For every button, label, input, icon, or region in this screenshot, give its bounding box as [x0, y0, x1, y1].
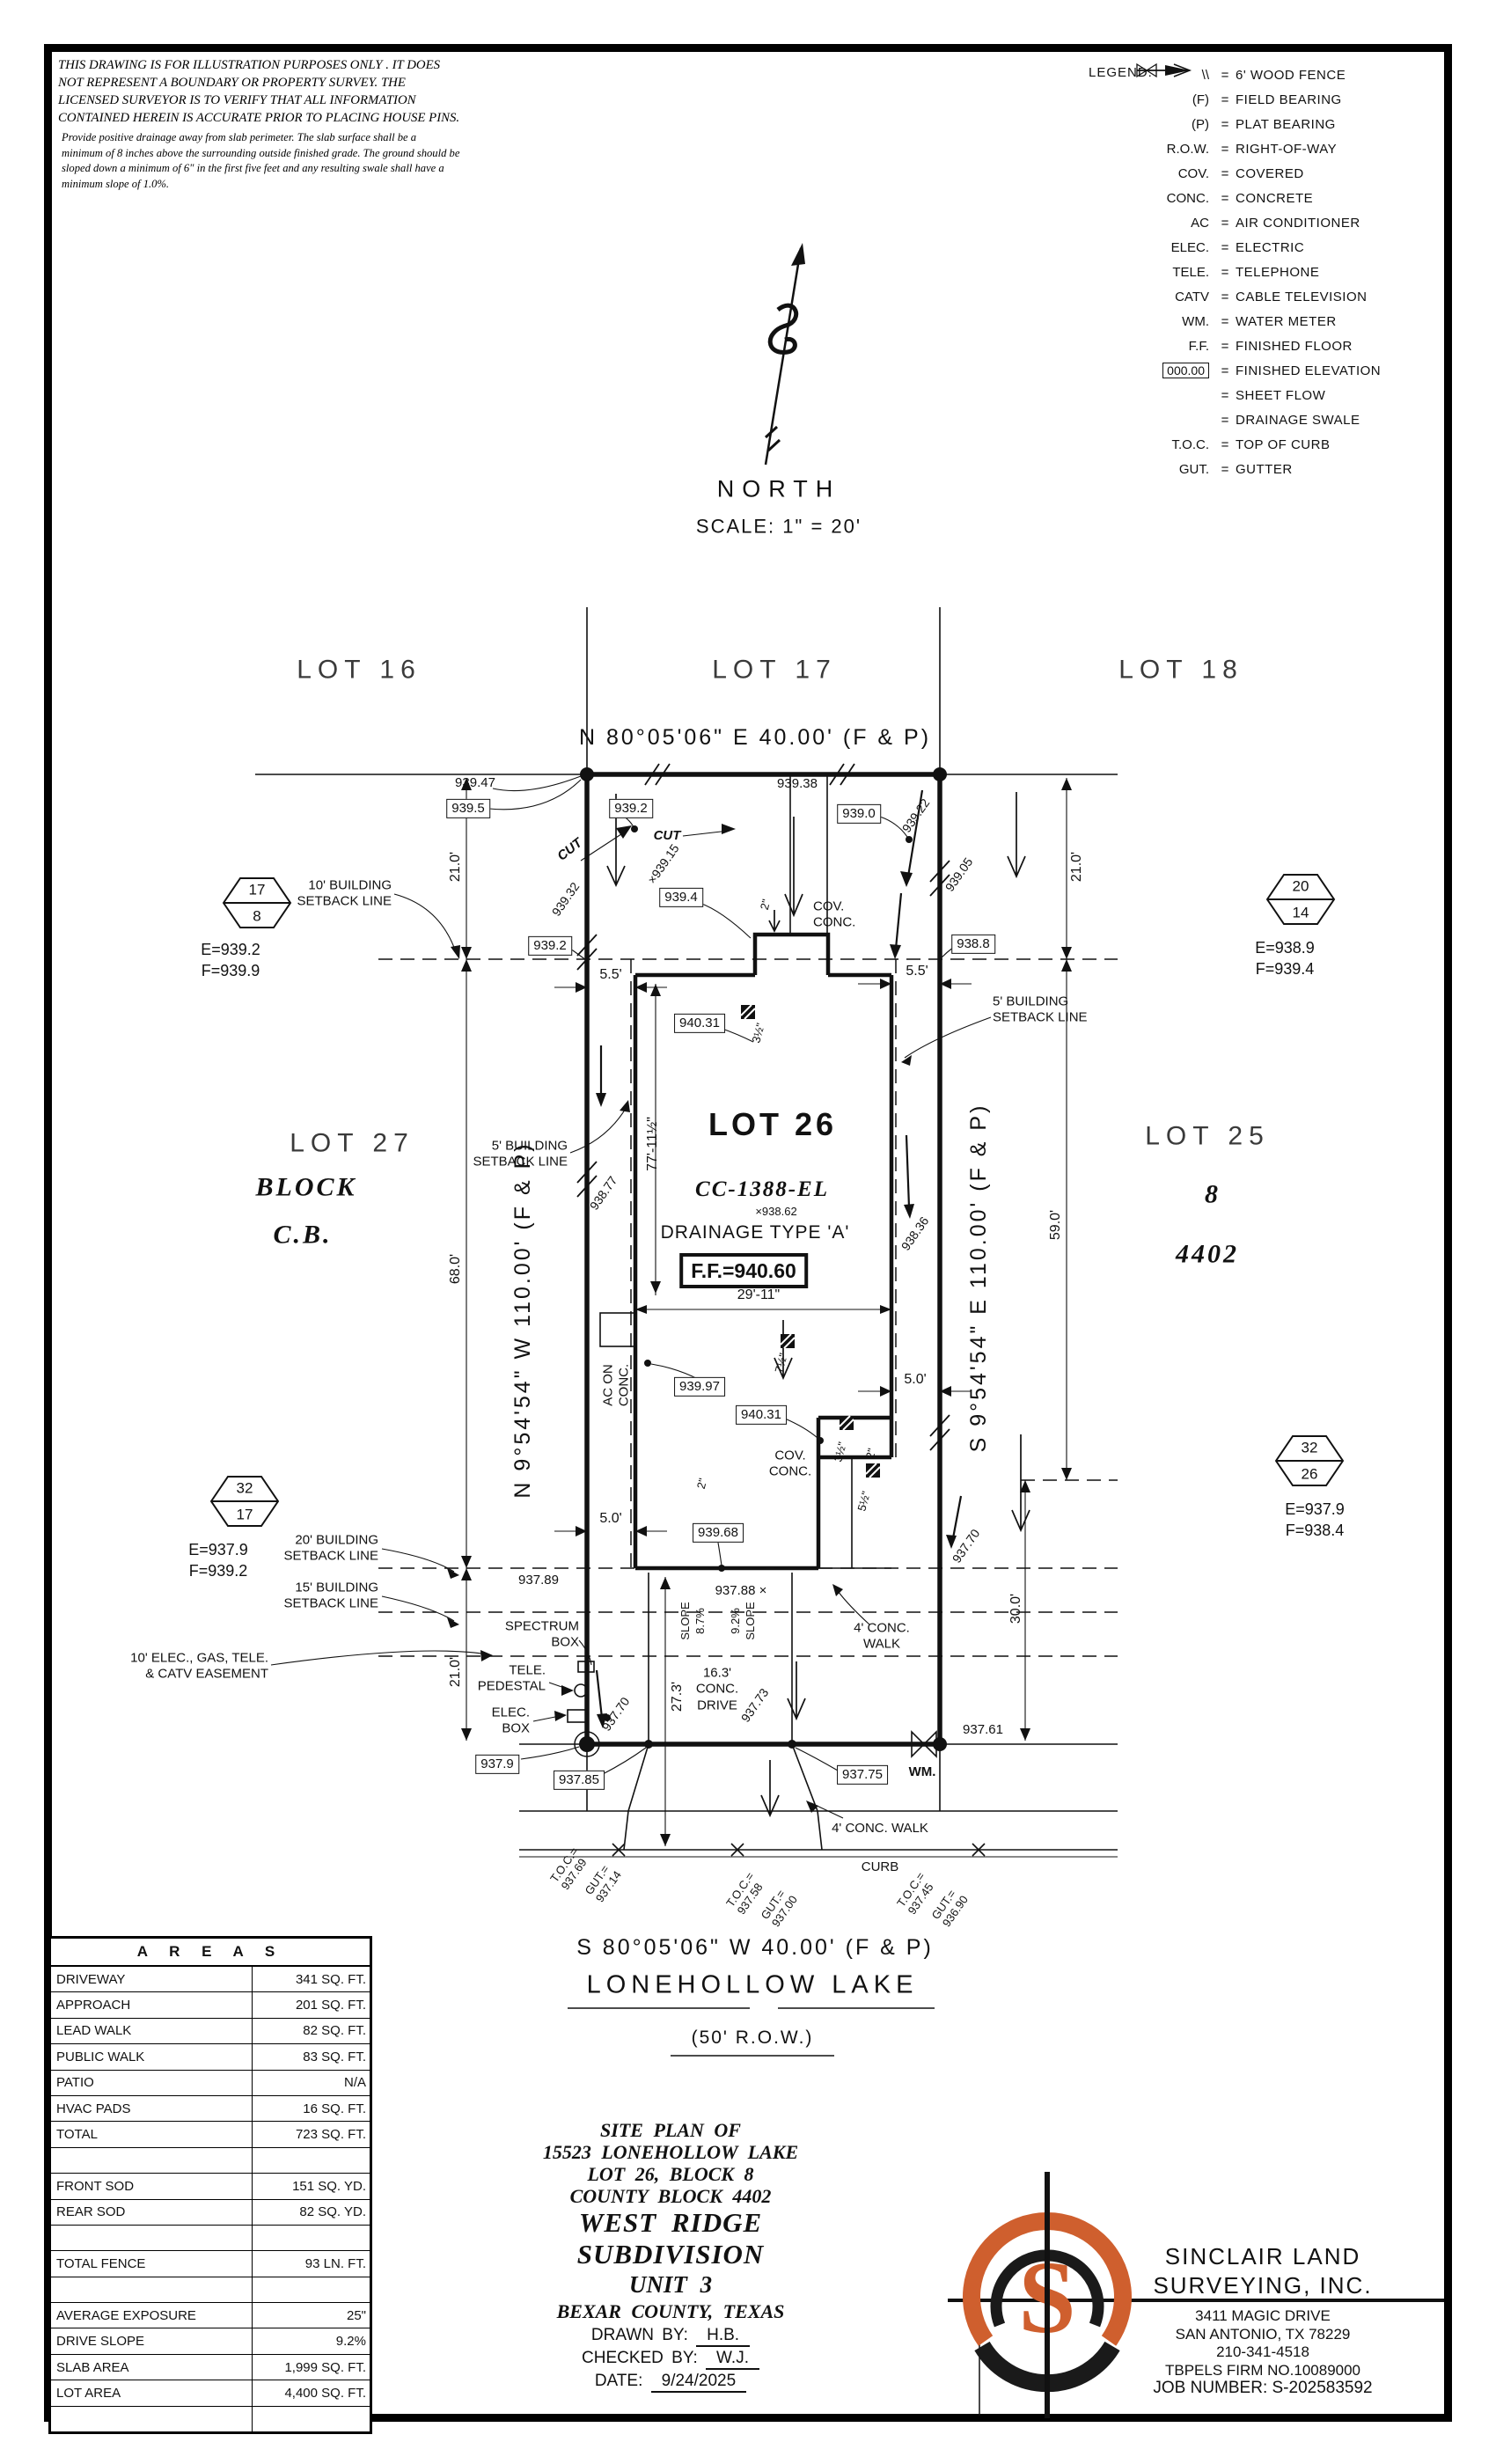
plat-label: 5' BUILDING SETBACK LINE — [473, 1139, 568, 1171]
areas-row-value — [253, 2148, 370, 2173]
areas-row-value: 82 SQ. FT. — [253, 2019, 370, 2043]
plat-label: 8 — [253, 908, 260, 927]
legend-symbol: CONC. — [1135, 191, 1214, 206]
areas-row-value: 723 SQ. FT. — [253, 2122, 370, 2146]
plat-label: 21.0' — [447, 852, 465, 882]
plat-label: 17 — [249, 882, 266, 900]
plat-label: 30.0' — [1008, 1594, 1025, 1624]
legend-row: TELE.=TELEPHONE — [1135, 260, 1439, 284]
title-block-line: LOT 26, BLOCK 8 — [486, 2163, 855, 2185]
legend-description: COVERED — [1236, 166, 1439, 181]
plat-label: 5.0' — [904, 1371, 926, 1389]
areas-row-value: 341 SQ. FT. — [253, 1967, 370, 1991]
date-label: DATE: — [595, 2372, 643, 2390]
plat-label: 937.85 — [554, 1771, 605, 1790]
legend-symbol: WM. — [1135, 314, 1214, 329]
plat-label: 32 — [237, 1480, 253, 1499]
areas-row-value: 4,400 SQ. FT. — [253, 2380, 370, 2405]
areas-row-value: 83 SQ. FT. — [253, 2044, 370, 2069]
scale-label: SCALE: 1" = 20' — [696, 516, 862, 539]
east-bearing: S 9°54'54" E 110.00' (F & P) — [965, 1104, 993, 1453]
checked-by-value: W.J. — [706, 2349, 759, 2370]
title-block-line: SITE PLAN OF — [486, 2119, 855, 2141]
plat-label: 939.5 — [446, 799, 490, 818]
drainage-note-line: Provide positive drainage away from slab… — [58, 130, 454, 146]
plat-label: ELEC. BOX — [492, 1705, 530, 1738]
legend-symbol: COV. — [1135, 166, 1214, 181]
legend-symbol: CATV — [1135, 290, 1214, 304]
legend-row: =SHEET FLOW — [1135, 383, 1439, 407]
areas-row-label: REAR SOD — [51, 2200, 253, 2225]
plat-label: 32 — [1302, 1440, 1318, 1458]
lot-27-label: LOT 27 — [290, 1128, 414, 1161]
plat-label: 8 — [1205, 1179, 1221, 1212]
legend-equals: = — [1214, 240, 1236, 255]
plat-label: 15' BUILDING SETBACK LINE — [283, 1580, 378, 1613]
plat-label: 68.0' — [447, 1254, 465, 1284]
title-block-line: COUNTY BLOCK 4402 — [486, 2185, 855, 2207]
legend-equals: = — [1214, 339, 1236, 354]
title-block-line: UNIT 3 — [486, 2270, 855, 2299]
legend-description: FINISHED FLOOR — [1236, 339, 1439, 354]
drainage-note-lines: Provide positive drainage away from slab… — [58, 130, 454, 192]
areas-row-label — [51, 2277, 253, 2302]
plat-label: 939.68 — [693, 1523, 744, 1543]
north-label: NORTH — [717, 475, 841, 504]
plat-label: 939.38 — [777, 776, 818, 792]
plat-label: 27.3' — [669, 1682, 686, 1712]
plat-label: 5.5' — [906, 963, 928, 980]
legend-symbol: (P) — [1135, 117, 1214, 132]
plat-label: E=937.9 — [188, 1541, 248, 1560]
plat-label: 21.0' — [1068, 852, 1086, 882]
drawn-by-row: DRAWN BY: H.B. — [486, 2324, 855, 2347]
drainage-note-line: minimum slope of 1.0%. — [58, 177, 454, 193]
areas-row: HVAC PADS16 SQ. FT. — [51, 2096, 370, 2122]
plat-label: SLOPE — [744, 1602, 758, 1639]
checked-by-label: CHECKED BY: — [582, 2349, 698, 2367]
legend-equals: = — [1214, 142, 1236, 157]
title-block: SITE PLAN OF15523 LONEHOLLOW LAKELOT 26,… — [486, 2119, 855, 2393]
plat-label: 16.3' CONC. DRIVE — [696, 1666, 738, 1714]
legend-equals: = — [1214, 265, 1236, 280]
legend-symbol: GUT. — [1135, 462, 1214, 477]
legend-row: (F)=FIELD BEARING — [1135, 87, 1439, 112]
legend-symbol: F.F. — [1135, 339, 1214, 354]
areas-row: SLAB AREA1,999 SQ. FT. — [51, 2355, 370, 2380]
plat-label: 938.8 — [951, 935, 995, 954]
legend-row: F.F.=FINISHED FLOOR — [1135, 334, 1439, 358]
areas-row-label: TOTAL — [51, 2122, 253, 2146]
date-row: DATE: 9/24/2025 — [486, 2370, 855, 2393]
areas-row-label — [51, 2148, 253, 2173]
areas-table: A R E A S DRIVEWAY341 SQ. FT.APPROACH201… — [48, 1936, 372, 2434]
legend-description: AIR CONDITIONER — [1236, 216, 1439, 231]
areas-row: PATION/A — [51, 2071, 370, 2096]
plat-label: 8.7% — [693, 1608, 708, 1634]
plat-label: CC-1388-EL — [695, 1177, 829, 1204]
plat-label: 20' BUILDING SETBACK LINE — [283, 1533, 378, 1566]
plat-label: 939.2 — [528, 936, 572, 956]
legend-row: =DRAINAGE SWALE — [1135, 407, 1439, 432]
plat-label: 20 — [1293, 878, 1309, 897]
firm-address-line: 210-341-4518 — [1109, 2343, 1417, 2362]
plat-label: 26 — [1302, 1466, 1318, 1485]
legend-symbol: ELEC. — [1135, 240, 1214, 255]
legend-row: T.O.C.=TOP OF CURB — [1135, 432, 1439, 457]
legend-row: (P)=PLAT BEARING — [1135, 112, 1439, 136]
drawn-by-label: DRAWN BY: — [591, 2326, 688, 2344]
legend-row: ELEC.=ELECTRIC — [1135, 235, 1439, 260]
title-block-line: WEST RIDGE SUBDIVISION — [486, 2207, 855, 2270]
legend-row: R.O.W.=RIGHT-OF-WAY — [1135, 136, 1439, 161]
plat-label: 939.47 — [455, 775, 495, 791]
south-bearing: S 80°05'06" W 40.00' (F & P) — [576, 1934, 934, 1962]
legend-description: PLAT BEARING — [1236, 117, 1439, 132]
plat-label: 4' CONC. WALK — [854, 1621, 910, 1654]
firm-address: 3411 MAGIC DRIVESAN ANTONIO, TX 78229210… — [1109, 2307, 1417, 2398]
areas-row-label: LEAD WALK — [51, 2019, 253, 2043]
site-plan-sheet: S THIS DRAWING IS FOR ILLUSTRATION PURPO… — [0, 0, 1496, 2464]
areas-row-label: LOT AREA — [51, 2380, 253, 2405]
plat-label: 937.88 × — [715, 1583, 767, 1599]
legend-equals: = — [1214, 413, 1236, 428]
plat-label: F=939.2 — [189, 1562, 248, 1581]
lot-25-label: LOT 25 — [1145, 1121, 1270, 1154]
legend-symbol: T.O.C. — [1135, 437, 1214, 452]
plat-label: 17 — [237, 1507, 253, 1525]
legend-row: GUT.=GUTTER — [1135, 457, 1439, 481]
legend-description: CONCRETE — [1236, 191, 1439, 206]
firm-name-line2: SURVEYING, INC. — [1153, 2271, 1373, 2300]
finished-floor: F.F.=940.60 — [679, 1253, 808, 1288]
areas-row: REAR SOD82 SQ. YD. — [51, 2200, 370, 2226]
legend-equals: = — [1214, 68, 1236, 83]
disclaimer-lines: THIS DRAWING IS FOR ILLUSTRATION PURPOSE… — [58, 56, 454, 127]
areas-row-label — [51, 2226, 253, 2250]
areas-row: DRIVE SLOPE9.2% — [51, 2328, 370, 2354]
legend-row: CONC.=CONCRETE — [1135, 186, 1439, 210]
areas-row-label: PUBLIC WALK — [51, 2044, 253, 2069]
areas-row-value — [253, 2407, 370, 2431]
plat-label: 10' BUILDING SETBACK LINE — [297, 878, 392, 911]
drainage-note-line: minimum of 8 inches above the surroundin… — [58, 146, 454, 162]
areas-row-value: 82 SQ. YD. — [253, 2200, 370, 2225]
legend-equals: = — [1214, 388, 1236, 403]
plat-label: TELE. PEDESTAL — [478, 1663, 546, 1696]
plat-label: CURB — [862, 1859, 899, 1875]
firm-address-line: JOB NUMBER: S-202583592 — [1109, 2380, 1417, 2398]
legend-equals: = — [1214, 363, 1236, 378]
plat-label: 940.31 — [674, 1014, 725, 1033]
lot-17-label: LOT 17 — [712, 655, 837, 687]
water-meter-label: WM. — [909, 1764, 936, 1780]
lot-18-label: LOT 18 — [1118, 655, 1243, 687]
areas-table-rows: DRIVEWAY341 SQ. FT.APPROACH201 SQ. FT.LE… — [51, 1967, 370, 2431]
legend-description: FIELD BEARING — [1236, 92, 1439, 107]
areas-row-value — [253, 2277, 370, 2302]
plat-label: 939.97 — [674, 1377, 725, 1397]
legend-equals: = — [1214, 462, 1236, 477]
plat-label: 21.0' — [447, 1657, 465, 1687]
plat-label: 937.75 — [837, 1765, 888, 1785]
disclaimer-line: THIS DRAWING IS FOR ILLUSTRATION PURPOSE… — [58, 56, 454, 74]
plat-label: ×938.62 — [755, 1205, 796, 1219]
areas-row-value — [253, 2226, 370, 2250]
areas-row-value: 1,999 SQ. FT. — [253, 2355, 370, 2380]
areas-row-value: 93 LN. FT. — [253, 2251, 370, 2276]
disclaimer-line: NOT REPRESENT A BOUNDARY OR PROPERTY SUR… — [58, 74, 454, 92]
plat-label: 5.5' — [599, 966, 621, 984]
plat-label: E=939.2 — [201, 941, 260, 960]
legend-symbol: TELE. — [1135, 265, 1214, 280]
areas-row: TOTAL723 SQ. FT. — [51, 2122, 370, 2147]
areas-row: FRONT SOD151 SQ. YD. — [51, 2174, 370, 2199]
legend-symbol: R.O.W. — [1135, 142, 1214, 157]
legend-row: 000.00=FINISHED ELEVATION — [1135, 358, 1439, 383]
plat-label: SPECTRUM BOX — [505, 1619, 579, 1652]
legend-description: RIGHT-OF-WAY — [1236, 142, 1439, 157]
plat-label: 937.61 — [963, 1722, 1003, 1738]
legend-equals: = — [1214, 117, 1236, 132]
legend-description: ELECTRIC — [1236, 240, 1439, 255]
disclaimer-line: CONTAINED HEREIN IS ACCURATE PRIOR TO PL… — [58, 109, 454, 127]
plat-label: 10' ELEC., GAS, TELE. & CATV EASEMENT — [130, 1651, 268, 1683]
areas-row-value: 25" — [253, 2303, 370, 2328]
firm-address-line: SAN ANTONIO, TX 78229 — [1109, 2326, 1417, 2344]
legend-row: \\=6' WOOD FENCE — [1135, 62, 1439, 87]
legend-description: TOP OF CURB — [1236, 437, 1439, 452]
street-row: (50' R.O.W.) — [692, 2027, 814, 2050]
plat-label: SLOPE — [678, 1602, 693, 1639]
plat-label: 937.9 — [475, 1755, 519, 1774]
plat-label: 939.2 — [609, 799, 653, 818]
areas-row-label: DRIVE SLOPE — [51, 2328, 253, 2353]
legend-description: TELEPHONE — [1236, 265, 1439, 280]
legend-description: FINISHED ELEVATION — [1236, 363, 1439, 378]
drainage-note-line: sloped down a minimum of 6" in the first… — [58, 161, 454, 177]
plat-label: 937.89 — [518, 1573, 559, 1588]
plat-label: E=938.9 — [1255, 939, 1315, 958]
legend-equals: = — [1214, 166, 1236, 181]
legend-equals: = — [1214, 216, 1236, 231]
areas-row: AVERAGE EXPOSURE25" — [51, 2303, 370, 2328]
areas-row-value: N/A — [253, 2071, 370, 2095]
legend-description: GUTTER — [1236, 462, 1439, 477]
disclaimer: THIS DRAWING IS FOR ILLUSTRATION PURPOSE… — [58, 56, 454, 192]
areas-row: DRIVEWAY341 SQ. FT. — [51, 1967, 370, 1992]
plat-label: 5' BUILDING SETBACK LINE — [993, 994, 1088, 1027]
plat-label: 939.4 — [659, 888, 703, 907]
legend-description: DRAINAGE SWALE — [1236, 413, 1439, 428]
plat-label: F=939.4 — [1256, 960, 1315, 979]
disclaimer-line: LICENSED SURVEYOR IS TO VERIFY THAT ALL … — [58, 92, 454, 109]
areas-table-title: A R E A S — [51, 1939, 370, 1967]
plat-label: DRAINAGE TYPE 'A' — [661, 1221, 850, 1244]
areas-row-value: 151 SQ. YD. — [253, 2174, 370, 2198]
firm-address-line: 3411 MAGIC DRIVE — [1109, 2307, 1417, 2326]
legend-description: 6' WOOD FENCE — [1236, 68, 1439, 83]
lot-16-label: LOT 16 — [297, 655, 422, 687]
areas-row-label: FRONT SOD — [51, 2174, 253, 2198]
legend-symbol: \\ — [1135, 68, 1214, 83]
plat-label: 5.0' — [599, 1510, 621, 1528]
areas-row: TOTAL FENCE93 LN. FT. — [51, 2251, 370, 2277]
areas-row-label: APPROACH — [51, 1992, 253, 2017]
legend: \\=6' WOOD FENCE(F)=FIELD BEARING(P)=PLA… — [1135, 62, 1439, 481]
areas-row: LOT AREA4,400 SQ. FT. — [51, 2380, 370, 2406]
legend-symbol: 000.00 — [1135, 363, 1214, 378]
plat-label: 4' CONC. WALK — [832, 1821, 928, 1837]
plat-label: 9.2% — [729, 1608, 743, 1634]
legend-description: CABLE TELEVISION — [1236, 290, 1439, 304]
lot-26-label: LOT 26 — [708, 1105, 837, 1144]
plat-label: 14 — [1293, 905, 1309, 923]
areas-row-label: AVERAGE EXPOSURE — [51, 2303, 253, 2328]
legend-row: CATV=CABLE TELEVISION — [1135, 284, 1439, 309]
legend-description: SHEET FLOW — [1236, 388, 1439, 403]
legend-row: COV.=COVERED — [1135, 161, 1439, 186]
plat-label: F=939.9 — [202, 962, 260, 981]
drawn-by-value: H.B. — [696, 2326, 750, 2347]
legend-description: WATER METER — [1236, 314, 1439, 329]
areas-row-label: DRIVEWAY — [51, 1967, 253, 1991]
plat-label: CUT — [654, 828, 681, 844]
legend-symbol: AC — [1135, 216, 1214, 231]
areas-row: PUBLIC WALK83 SQ. FT. — [51, 2044, 370, 2070]
plat-label: COV. CONC. — [769, 1448, 811, 1481]
plat-label: C.B. — [273, 1220, 332, 1252]
areas-row-value: 16 SQ. FT. — [253, 2096, 370, 2121]
legend-equals: = — [1214, 92, 1236, 107]
title-block-line: 15523 LONEHOLLOW LAKE — [486, 2141, 855, 2163]
plat-label: 940.31 — [736, 1405, 787, 1425]
title-block-line: BEXAR COUNTY, TEXAS — [486, 2299, 855, 2324]
areas-row: APPROACH201 SQ. FT. — [51, 1992, 370, 2018]
plat-label: E=937.9 — [1285, 1500, 1345, 1520]
areas-row-value: 201 SQ. FT. — [253, 1992, 370, 2017]
plat-label: COV. CONC. — [813, 899, 855, 932]
title-block-lines: SITE PLAN OF15523 LONEHOLLOW LAKELOT 26,… — [486, 2119, 855, 2324]
plat-label: 29'-11" — [737, 1287, 780, 1304]
legend-equals: = — [1214, 191, 1236, 206]
plat-label: AC ON CONC. — [601, 1364, 634, 1406]
areas-row — [51, 2226, 370, 2251]
date-value: 9/24/2025 — [651, 2372, 747, 2393]
firm-name-line1: SINCLAIR LAND — [1153, 2242, 1373, 2271]
legend-symbol: (F) — [1135, 92, 1214, 107]
plat-label: 59.0' — [1047, 1210, 1065, 1240]
areas-row — [51, 2407, 370, 2431]
firm-name: SINCLAIR LAND SURVEYING, INC. — [1153, 2242, 1373, 2300]
areas-row-label: PATIO — [51, 2071, 253, 2095]
firm-address-line: TBPELS FIRM NO.10089000 — [1109, 2362, 1417, 2380]
plat-label: 939.0 — [837, 804, 881, 824]
areas-row: LEAD WALK82 SQ. FT. — [51, 2019, 370, 2044]
areas-row — [51, 2148, 370, 2174]
areas-row-label: TOTAL FENCE — [51, 2251, 253, 2276]
legend-row: AC=AIR CONDITIONER — [1135, 210, 1439, 235]
street-name: LONEHOLLOW LAKE — [587, 1969, 919, 2000]
legend-row: WM.=WATER METER — [1135, 309, 1439, 334]
areas-row — [51, 2277, 370, 2303]
areas-row-label — [51, 2407, 253, 2431]
checked-by-row: CHECKED BY: W.J. — [486, 2347, 855, 2370]
areas-row-label: SLAB AREA — [51, 2355, 253, 2380]
areas-row-label: HVAC PADS — [51, 2096, 253, 2121]
west-bearing: N 9°54'54" W 110.00' (F & P) — [510, 1141, 537, 1498]
plat-label: 4402 — [1176, 1239, 1239, 1272]
plat-label: BLOCK — [255, 1172, 356, 1205]
north-bearing: N 80°05'06" E 40.00' (F & P) — [579, 724, 931, 752]
legend-equals: = — [1214, 314, 1236, 329]
plat-label: 77'-11½" — [644, 1117, 662, 1171]
areas-row-value: 9.2% — [253, 2328, 370, 2353]
legend-equals: = — [1214, 437, 1236, 452]
legend-equals: = — [1214, 290, 1236, 304]
plat-label: F=938.4 — [1286, 1522, 1345, 1541]
